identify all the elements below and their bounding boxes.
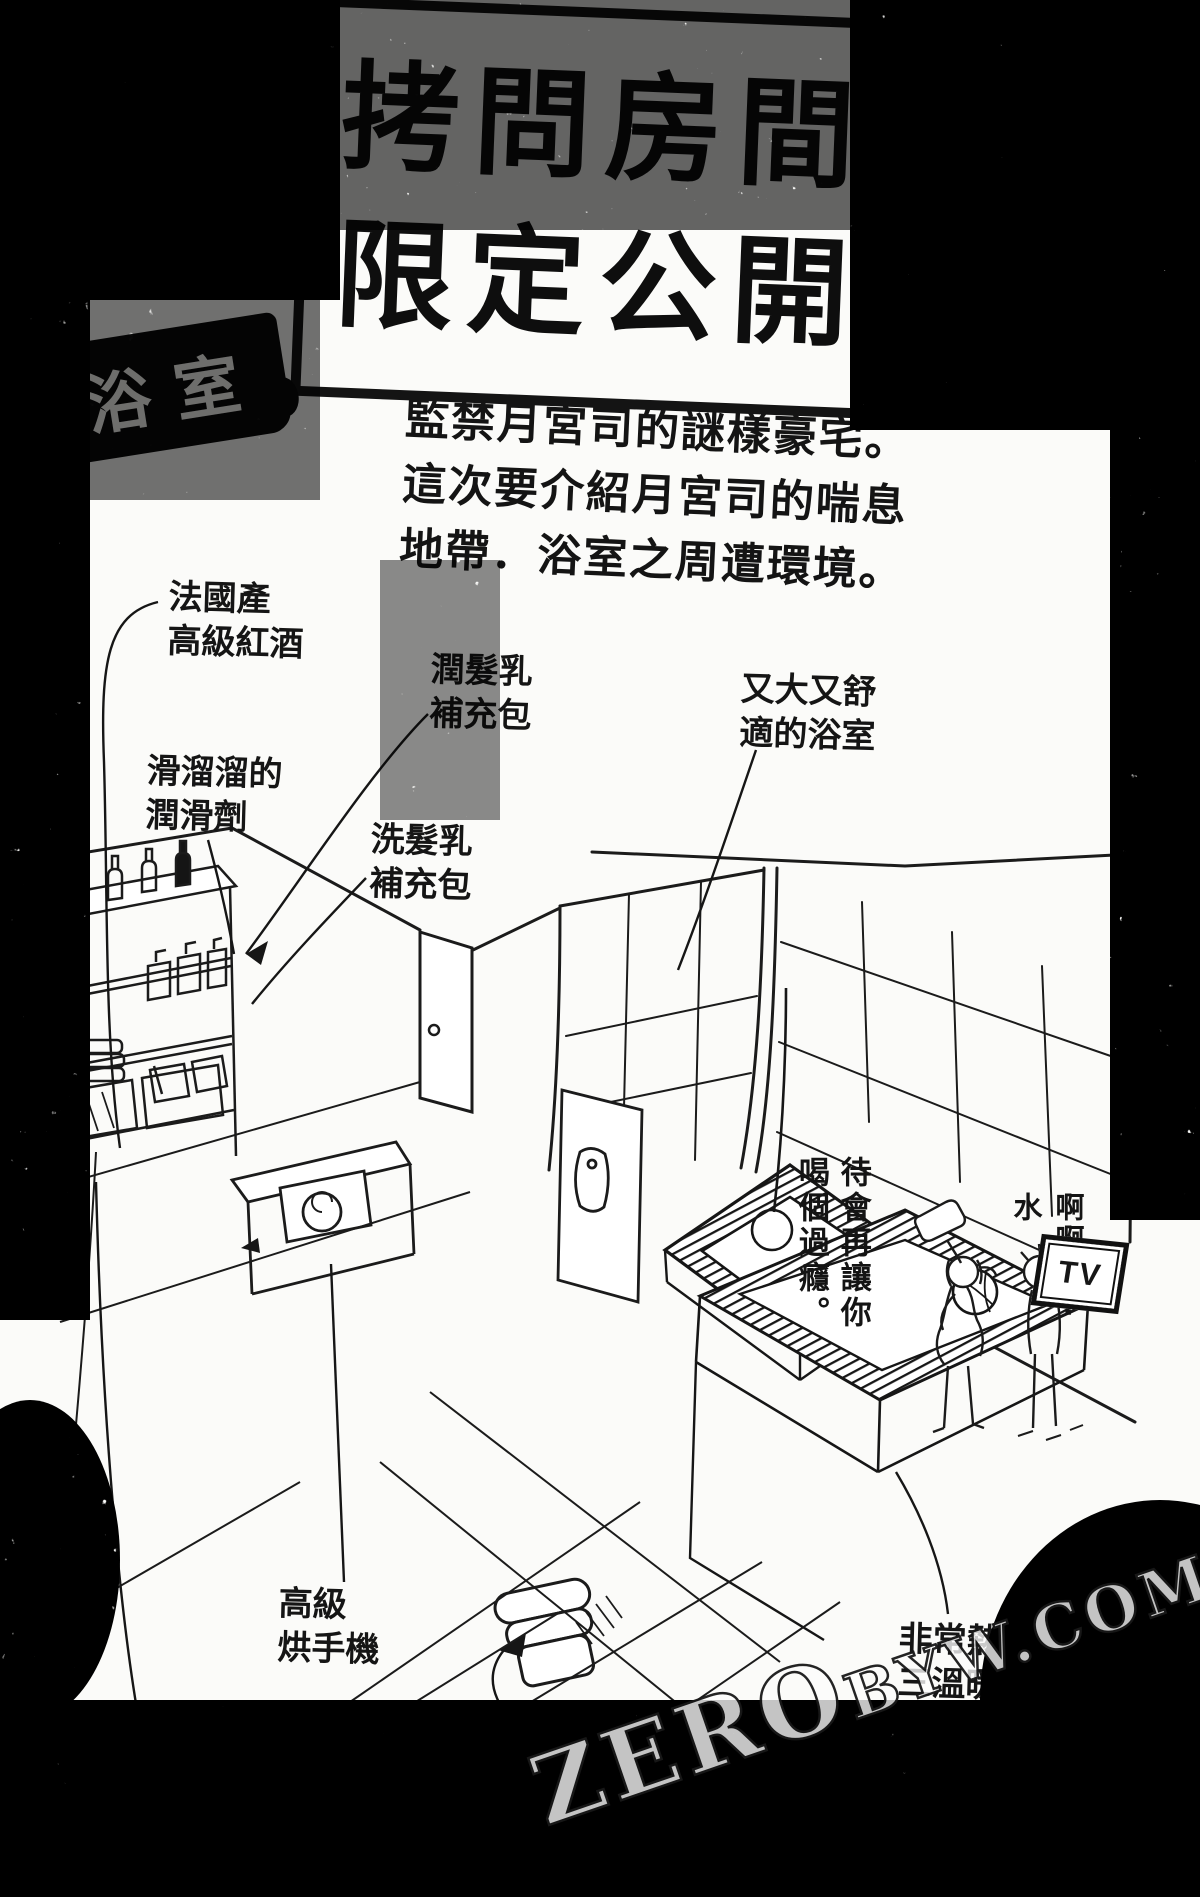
tv-screen: TV: [1031, 1234, 1130, 1314]
title-box: 拷問房間 限定公開!: [290, 0, 918, 420]
label-wine-line: 高級紅酒: [167, 620, 304, 667]
label-soft-towel: 非常柔軟 的浴巾: [127, 1734, 265, 1825]
label-lubricant: 滑溜溜的 潤滑劑: [145, 750, 283, 841]
page-title-line1: 拷問房間: [338, 39, 906, 220]
tv-label: TV: [1055, 1254, 1104, 1294]
label-wine-line: 法國產: [168, 576, 305, 623]
speech-column: 待會再讓你: [832, 1156, 874, 1456]
toilet-bidet: [492, 1577, 622, 1691]
door: [420, 932, 472, 1112]
page-title-line2: 限定公開!: [332, 197, 900, 378]
label-hand-dryer-line: 高級: [278, 1583, 381, 1629]
label-spacious-bathroom: 又大又舒 適的浴室: [739, 668, 877, 759]
wall-panel-urinal: [558, 1090, 642, 1302]
label-towel-line: 非常柔軟: [128, 1734, 265, 1781]
label-hot-sauna: 非常熱的 三溫暖: [897, 1618, 1035, 1709]
label-shampoo-refill: 洗髮乳 補充包: [369, 819, 473, 909]
floor-lines: [22, 1082, 840, 1822]
label-hand-dryer-line: 烘手機: [277, 1626, 380, 1672]
speech-vertical-text: 待會再讓你 喝個過癮。: [790, 1156, 874, 1456]
label-bidet-line: 被牢牢固定: [511, 1783, 682, 1831]
label-conditioner-refill: 潤髮乳 補充包: [429, 649, 533, 739]
label-conditioner-line: 潤髮乳: [430, 649, 533, 695]
label-bathroom-line: 適的浴室: [739, 712, 876, 759]
label-bidet-line: 免治馬桶座: [512, 1740, 683, 1788]
label-conditioner-line: 補充包: [429, 692, 532, 738]
room-label-text: 浴室: [54, 327, 271, 454]
intro-paragraph: 監禁月宮司的謎樣豪宅。 這次要介紹月宮司的喘息 地帶．浴室之周遭環境。: [398, 387, 912, 605]
label-towel-line: 的浴巾: [127, 1778, 264, 1825]
label-sauna-line: 三溫暖: [897, 1662, 1034, 1709]
label-sauna-line: 非常熱的: [898, 1618, 1035, 1665]
manga-page: 拷問房間 限定公開! 浴室 監禁月宮司的謎樣豪宅。 這次要介紹月宮司的喘息 地帶…: [0, 0, 1200, 1897]
label-lubricant-line: 滑溜溜的: [146, 750, 283, 797]
speech-column: 喝個過癮。: [790, 1156, 832, 1456]
label-lubricant-line: 潤滑劑: [145, 794, 282, 841]
label-shampoo-line: 洗髮乳: [370, 819, 473, 865]
washing-machine: [2, 1048, 78, 1194]
label-hand-dryer: 高級 烘手機: [277, 1583, 381, 1673]
label-shampoo-line: 補充包: [369, 862, 472, 908]
label-bathroom-line: 又大又舒: [740, 668, 877, 715]
label-wine: 法國產 高級紅酒: [167, 576, 305, 667]
label-bidet-seat: 免治馬桶座 被牢牢固定: [511, 1740, 683, 1832]
